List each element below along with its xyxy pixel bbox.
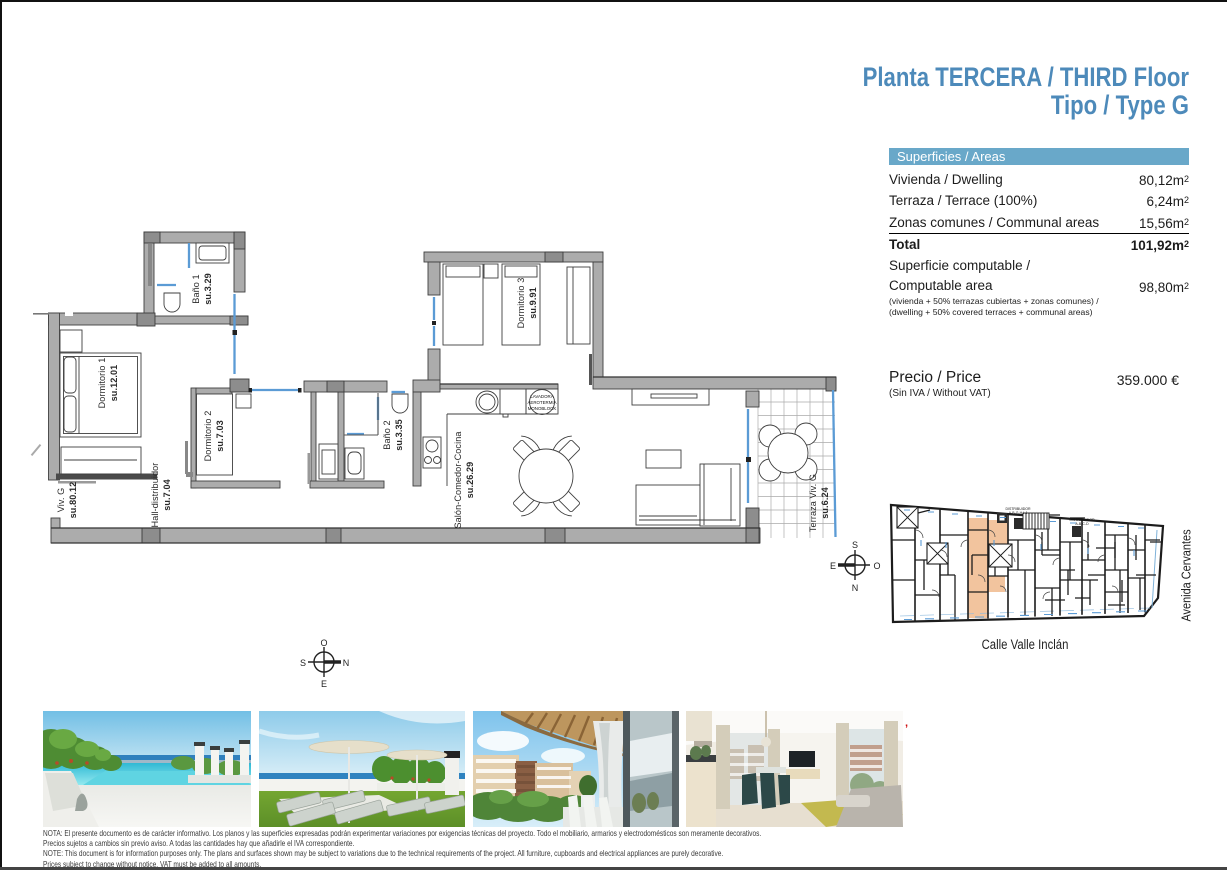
svg-text:Baño 1: Baño 1 — [191, 274, 201, 303]
svg-text:su.26.29: su.26.29 — [465, 462, 475, 499]
svg-text:Salón-Comedor-Cocina: Salón-Comedor-Cocina — [453, 431, 463, 529]
svg-text:su.80.12: su.80.12 — [68, 482, 78, 519]
svg-text:su.7.03: su.7.03 — [215, 420, 225, 452]
svg-text:E: E — [830, 561, 836, 571]
svg-text:A-B-C-D: A-B-C-D — [1075, 522, 1089, 526]
svg-text:Terraza Viv. G: Terraza Viv. G — [808, 474, 818, 532]
svg-text:Baño 2: Baño 2 — [382, 420, 392, 449]
svg-text:su.3.35: su.3.35 — [394, 419, 404, 451]
svg-text:MONOBLOCK: MONOBLOCK — [528, 406, 557, 411]
svg-text:N: N — [343, 658, 350, 668]
svg-text:Dormitorio 1: Dormitorio 1 — [97, 358, 107, 409]
svg-text:LAVADORA: LAVADORA — [530, 394, 553, 399]
svg-text:A-B-G-H-I-J: A-B-G-H-I-J — [1009, 511, 1028, 515]
svg-text:S: S — [300, 658, 306, 668]
svg-text:su.7.04: su.7.04 — [162, 478, 172, 510]
svg-text:Dormitorio 2: Dormitorio 2 — [203, 411, 213, 462]
svg-text:O: O — [873, 561, 880, 571]
svg-text:Hall-distribuidor: Hall-distribuidor — [150, 463, 160, 528]
svg-text:S: S — [852, 540, 858, 550]
svg-text:su.12.01: su.12.01 — [109, 365, 119, 402]
svg-text:O: O — [320, 638, 327, 648]
svg-text:su.9.91: su.9.91 — [528, 287, 538, 319]
svg-text:E: E — [321, 679, 327, 689]
svg-text:Viv. G: Viv. G — [56, 488, 66, 513]
svg-text:AEROTERMIA: AEROTERMIA — [527, 400, 556, 405]
svg-text:su.3.29: su.3.29 — [203, 273, 213, 305]
svg-text:Dormitorio 3: Dormitorio 3 — [516, 278, 526, 329]
svg-text:N: N — [852, 583, 859, 593]
